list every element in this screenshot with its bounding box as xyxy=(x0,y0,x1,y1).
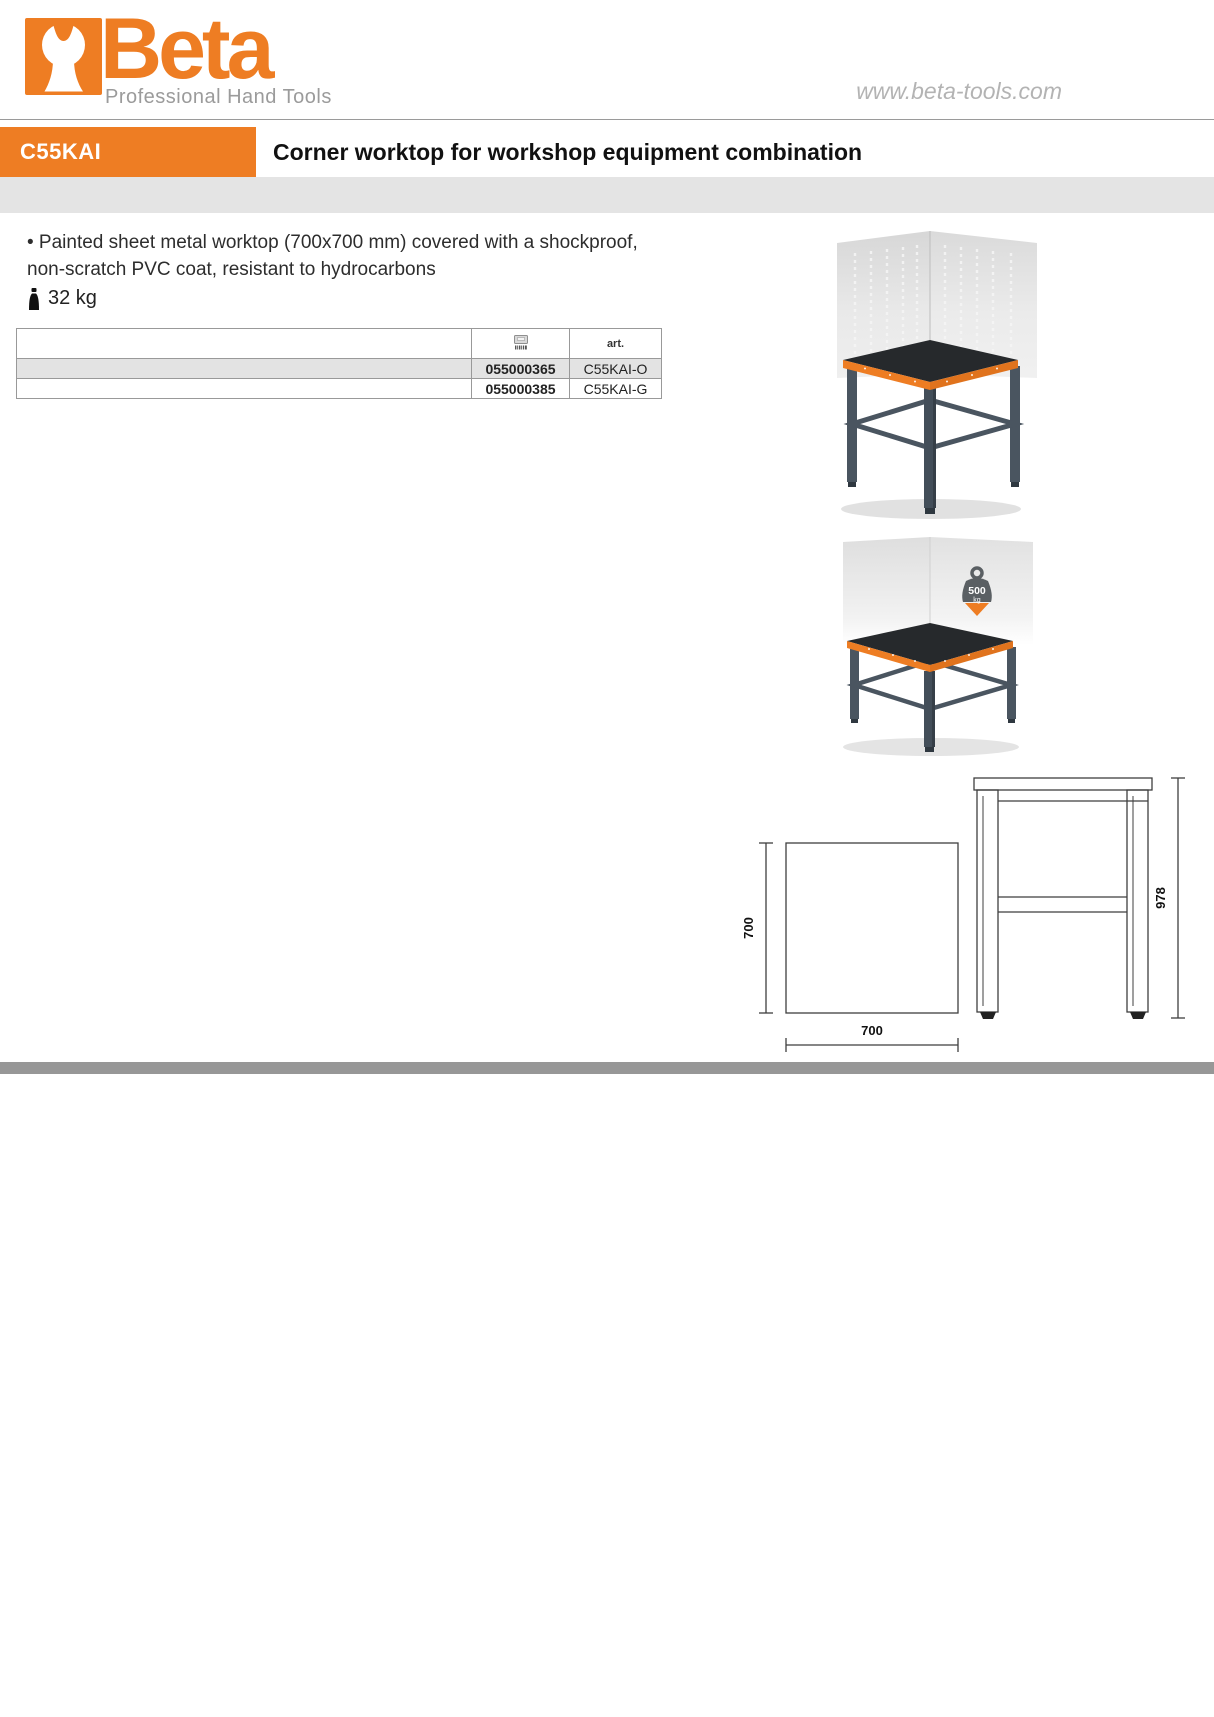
article-code: C55KAI-G xyxy=(570,379,662,399)
depth-dimension-label: 700 xyxy=(741,917,756,939)
beta-wrench-icon xyxy=(25,18,102,95)
product-description: • Painted sheet metal worktop (700x700 m… xyxy=(27,229,638,283)
leg-foot xyxy=(1130,1012,1146,1019)
website-url: www.beta-tools.com xyxy=(856,78,1062,105)
order-code: 055000365 xyxy=(472,359,570,379)
empty-cell xyxy=(17,359,472,379)
width-dimension-label: 700 xyxy=(861,1023,883,1038)
empty-cell xyxy=(17,379,472,399)
brand-name: Beta xyxy=(100,6,270,92)
order-table: art. 055000365 C55KAI-O 055000385 C55KAI… xyxy=(16,328,662,399)
drawing-top-view xyxy=(786,843,958,1013)
height-dimension-label: 978 xyxy=(1153,887,1168,909)
product-code: C55KAI xyxy=(20,127,101,177)
capacity-unit: kg xyxy=(973,597,981,604)
order-table-header-row: art. xyxy=(17,329,662,359)
art-header-cell: art. xyxy=(570,329,662,359)
table-row: 055000385 C55KAI-G xyxy=(17,379,662,399)
product-photo-corner-worktop xyxy=(835,228,1040,520)
order-code: 055000385 xyxy=(472,379,570,399)
article-code: C55KAI-O xyxy=(570,359,662,379)
weight-row: 32 kg xyxy=(27,287,97,310)
barcode-icon xyxy=(511,335,531,350)
header-bar: C55KAI Corner worktop for workshop equip… xyxy=(0,127,1214,177)
table-row: 055000365 C55KAI-O xyxy=(17,359,662,379)
header-gray-band xyxy=(0,177,1214,213)
footer-bar xyxy=(0,1062,1214,1074)
description-line-1: • Painted sheet metal worktop (700x700 m… xyxy=(27,229,638,256)
brand-tagline: Professional Hand Tools xyxy=(105,86,332,109)
product-code-block: C55KAI xyxy=(0,127,256,177)
capacity-value: 500 xyxy=(968,585,986,597)
top-divider xyxy=(0,119,1214,120)
page-title: Corner worktop for workshop equipment co… xyxy=(273,127,862,177)
drawing-front-view xyxy=(974,778,1152,1012)
description-line-2: non-scratch PVC coat, resistant to hydro… xyxy=(27,256,638,283)
weight-icon xyxy=(27,288,41,310)
weight-value: 32 kg xyxy=(48,287,97,310)
product-datasheet-page: Beta Professional Hand Tools www.beta-to… xyxy=(0,0,1214,1717)
technical-drawing: 700 700 978 xyxy=(660,700,1214,1060)
code-header-cell xyxy=(472,329,570,359)
leg-foot xyxy=(980,1012,996,1019)
empty-header-cell xyxy=(17,329,472,359)
